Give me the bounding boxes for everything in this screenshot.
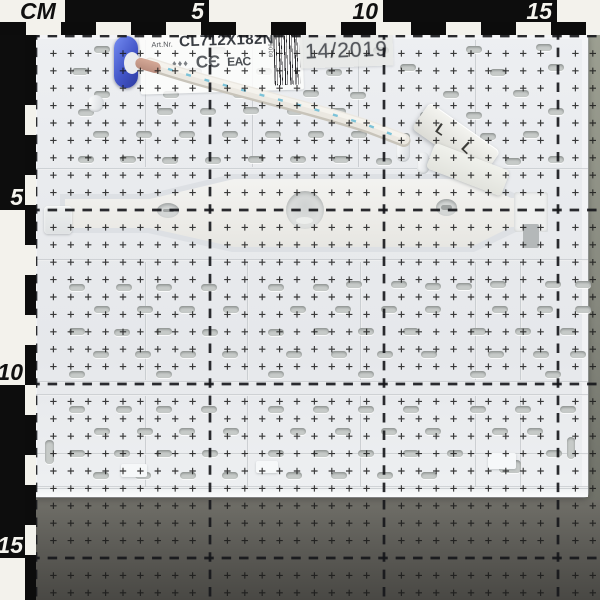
cm-label: CM: [20, 0, 56, 23]
ruler-segment: 15: [0, 385, 25, 558]
ruler-number: 15: [526, 0, 552, 23]
ruler-number: 10: [352, 0, 378, 23]
ruler-number: 5: [10, 186, 23, 209]
ruler-top-tickband: [0, 22, 600, 35]
measurement-photo: Art.Nr. CL712X182N ♦♦♦ CЄ ЕАС 979008 14/…: [0, 0, 600, 600]
ruler-segment: 10: [0, 210, 25, 385]
grid-crosses: [50, 50, 596, 596]
ruler-tick: [25, 385, 36, 415]
ruler-left: 51015: [0, 0, 36, 600]
ruler-tick: [25, 175, 36, 205]
measurement-grid-overlay: [0, 0, 600, 600]
ruler-segment: CM: [0, 0, 65, 22]
ruler-number: 10: [0, 361, 23, 384]
ruler-tick: [25, 525, 36, 555]
ruler-tick: [25, 455, 36, 485]
ruler-number: 15: [0, 534, 23, 557]
ruler-top: CM51015: [0, 0, 600, 35]
ruler-segment: [557, 0, 600, 22]
ruler-tick: [25, 105, 36, 135]
ruler-tick: [236, 22, 271, 35]
ruler-segment: [0, 558, 25, 600]
ruler-number: 5: [191, 0, 204, 23]
ruler-left-tickband: [25, 0, 36, 600]
ruler-tick: [25, 245, 36, 275]
ruler-tick: [586, 22, 600, 35]
ruler-segment: 5: [0, 22, 25, 210]
ruler-tick: [306, 22, 341, 35]
ruler-segment: 10: [209, 0, 383, 22]
ruler-segment: 5: [65, 0, 209, 22]
ruler-segment: 15: [383, 0, 557, 22]
ruler-tick: [96, 22, 131, 35]
ruler-tick: [446, 22, 481, 35]
ruler-tick: [25, 315, 36, 345]
ruler-tick: [376, 22, 411, 35]
